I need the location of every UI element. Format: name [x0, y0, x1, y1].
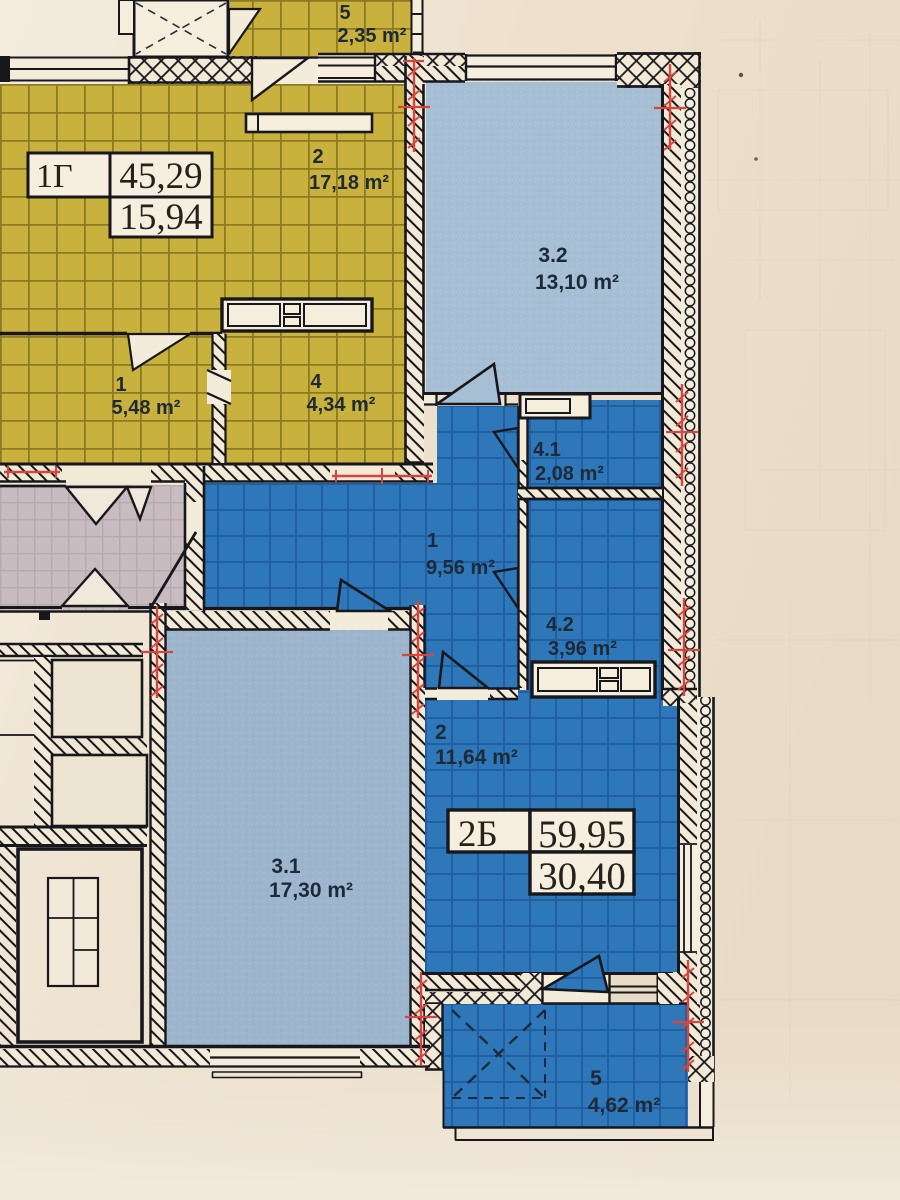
svg-text:1: 1 — [427, 530, 438, 552]
svg-text:4: 4 — [310, 371, 322, 393]
svg-text:45,29: 45,29 — [119, 156, 202, 197]
svg-text:2: 2 — [435, 721, 447, 744]
svg-text:4.1: 4.1 — [533, 439, 561, 461]
svg-text:2: 2 — [312, 146, 323, 168]
svg-text:3.1: 3.1 — [271, 855, 301, 878]
svg-text:59,95: 59,95 — [538, 813, 626, 856]
svg-text:1: 1 — [115, 374, 126, 396]
svg-text:3.2: 3.2 — [538, 244, 567, 267]
svg-text:5: 5 — [339, 2, 350, 24]
svg-text:15,94: 15,94 — [119, 197, 202, 238]
svg-text:5,48 m²: 5,48 m² — [112, 397, 181, 419]
svg-text:4,62 m²: 4,62 m² — [588, 1094, 660, 1117]
svg-text:2,35 m²: 2,35 m² — [338, 25, 407, 47]
svg-text:9,56 m²: 9,56 m² — [426, 557, 495, 579]
svg-text:17,30 m²: 17,30 m² — [269, 879, 353, 902]
svg-text:30,40: 30,40 — [538, 855, 626, 898]
svg-text:2,08 m²: 2,08 m² — [535, 463, 604, 485]
svg-text:3,96 m²: 3,96 m² — [548, 638, 617, 660]
svg-text:13,10 m²: 13,10 m² — [535, 271, 619, 294]
svg-text:4.2: 4.2 — [546, 614, 574, 636]
svg-text:11,64 m²: 11,64 m² — [435, 746, 518, 769]
svg-text:1Г: 1Г — [36, 158, 73, 195]
svg-text:5: 5 — [590, 1067, 602, 1090]
svg-text:4,34 m²: 4,34 m² — [307, 394, 376, 416]
svg-text:17,18 m²: 17,18 m² — [309, 172, 389, 194]
svg-text:2Б: 2Б — [458, 814, 498, 855]
